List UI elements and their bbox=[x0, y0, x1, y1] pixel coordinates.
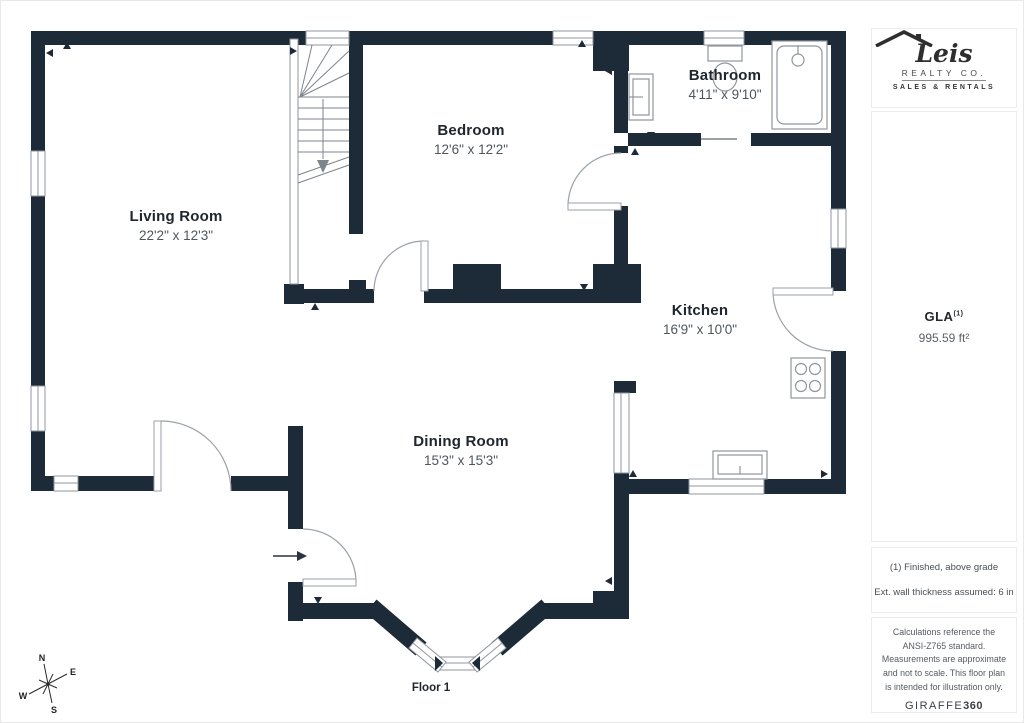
stair-railing bbox=[290, 39, 298, 284]
bathroom-sink bbox=[629, 74, 653, 120]
entry-arrow-icon bbox=[273, 551, 307, 561]
room-dims: 22'2" x 12'3" bbox=[129, 228, 222, 243]
room-dims: 12'6" x 12'2" bbox=[434, 142, 508, 157]
compass-w: W bbox=[19, 691, 28, 701]
doors bbox=[154, 139, 833, 586]
floorplan-page: N E S W Living Room 22'2" x 12'3" Bedroo… bbox=[0, 0, 1024, 723]
notes-section: (1) Finished, above grade Ext. wall thic… bbox=[871, 547, 1017, 613]
compass-s: S bbox=[51, 705, 57, 715]
stairs bbox=[290, 39, 349, 284]
room-name: Living Room bbox=[129, 208, 222, 225]
floor-label: Floor 1 bbox=[412, 682, 450, 694]
fixtures bbox=[629, 41, 827, 479]
compass-e: E bbox=[70, 667, 76, 677]
compass-n: N bbox=[39, 653, 46, 663]
room-name: Kitchen bbox=[663, 302, 737, 319]
note-finished: (1) Finished, above grade bbox=[890, 562, 998, 573]
stair-down-arrow bbox=[317, 160, 329, 173]
room-label-bathroom: Bathroom 4'11" x 9'10" bbox=[688, 67, 761, 102]
floorplan-drawing: N E S W bbox=[1, 1, 861, 723]
room-dims: 15'3" x 15'3" bbox=[413, 453, 509, 468]
room-label-bedroom: Bedroom 12'6" x 12'2" bbox=[434, 122, 508, 157]
room-label-living: Living Room 22'2" x 12'3" bbox=[129, 208, 222, 243]
room-name: Bathroom bbox=[688, 67, 761, 84]
realty-logo: Leis REALTY CO. SALES & RENTALS bbox=[871, 28, 1017, 108]
room-label-kitchen: Kitchen 16'9" x 10'0" bbox=[663, 302, 737, 337]
bathtub-shower bbox=[772, 41, 827, 129]
logo-subtitle: REALTY CO. bbox=[902, 68, 987, 81]
room-dims: 4'11" x 9'10" bbox=[688, 87, 761, 102]
note-wall-thickness: Ext. wall thickness assumed: 6 in bbox=[874, 587, 1013, 598]
stove bbox=[791, 358, 825, 398]
gla-section: GLA(1) 995.59 ft² bbox=[871, 111, 1017, 542]
disclaimer-text: Calculations reference the ANSI-Z765 sta… bbox=[881, 626, 1007, 694]
room-name: Bedroom bbox=[434, 122, 508, 139]
logo-tagline: SALES & RENTALS bbox=[893, 84, 995, 91]
logo-roof-icon bbox=[872, 29, 936, 47]
room-dims: 16'9" x 10'0" bbox=[663, 322, 737, 337]
gla-value: 995.59 ft² bbox=[919, 331, 970, 345]
compass-icon: N E S W bbox=[19, 653, 76, 715]
gla-label: GLA(1) bbox=[924, 309, 963, 324]
giraffe360-brand: GIRAFFE360 bbox=[905, 700, 983, 712]
room-name: Dining Room bbox=[413, 433, 509, 450]
disclaimer-section: Calculations reference the ANSI-Z765 sta… bbox=[871, 617, 1017, 713]
kitchen-sink bbox=[713, 451, 767, 479]
room-label-dining: Dining Room 15'3" x 15'3" bbox=[413, 433, 509, 468]
